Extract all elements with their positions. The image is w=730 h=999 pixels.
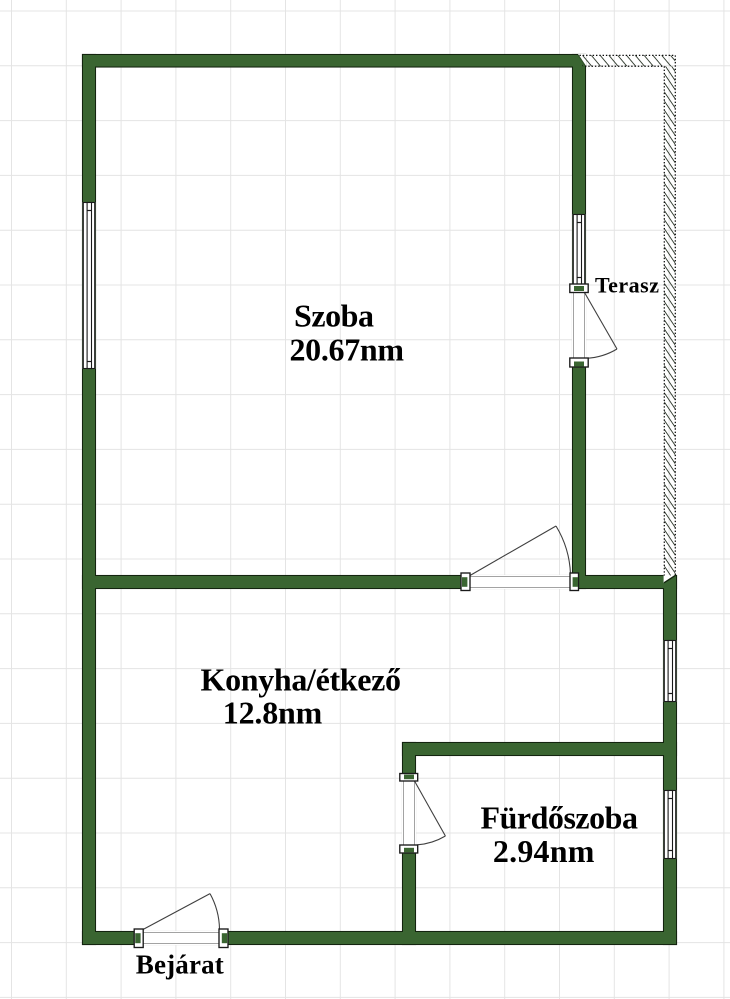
svg-text:Szoba: Szoba bbox=[294, 298, 374, 334]
svg-text:Terasz: Terasz bbox=[595, 272, 659, 297]
svg-text:2.94nm: 2.94nm bbox=[493, 833, 595, 869]
svg-text:Fürdőszoba: Fürdőszoba bbox=[481, 799, 639, 835]
svg-text:Konyha/étkező: Konyha/étkező bbox=[201, 661, 402, 697]
svg-text:12.8nm: 12.8nm bbox=[223, 695, 323, 731]
svg-text:20.67nm: 20.67nm bbox=[290, 331, 405, 367]
svg-text:Bejárat: Bejárat bbox=[136, 949, 224, 979]
